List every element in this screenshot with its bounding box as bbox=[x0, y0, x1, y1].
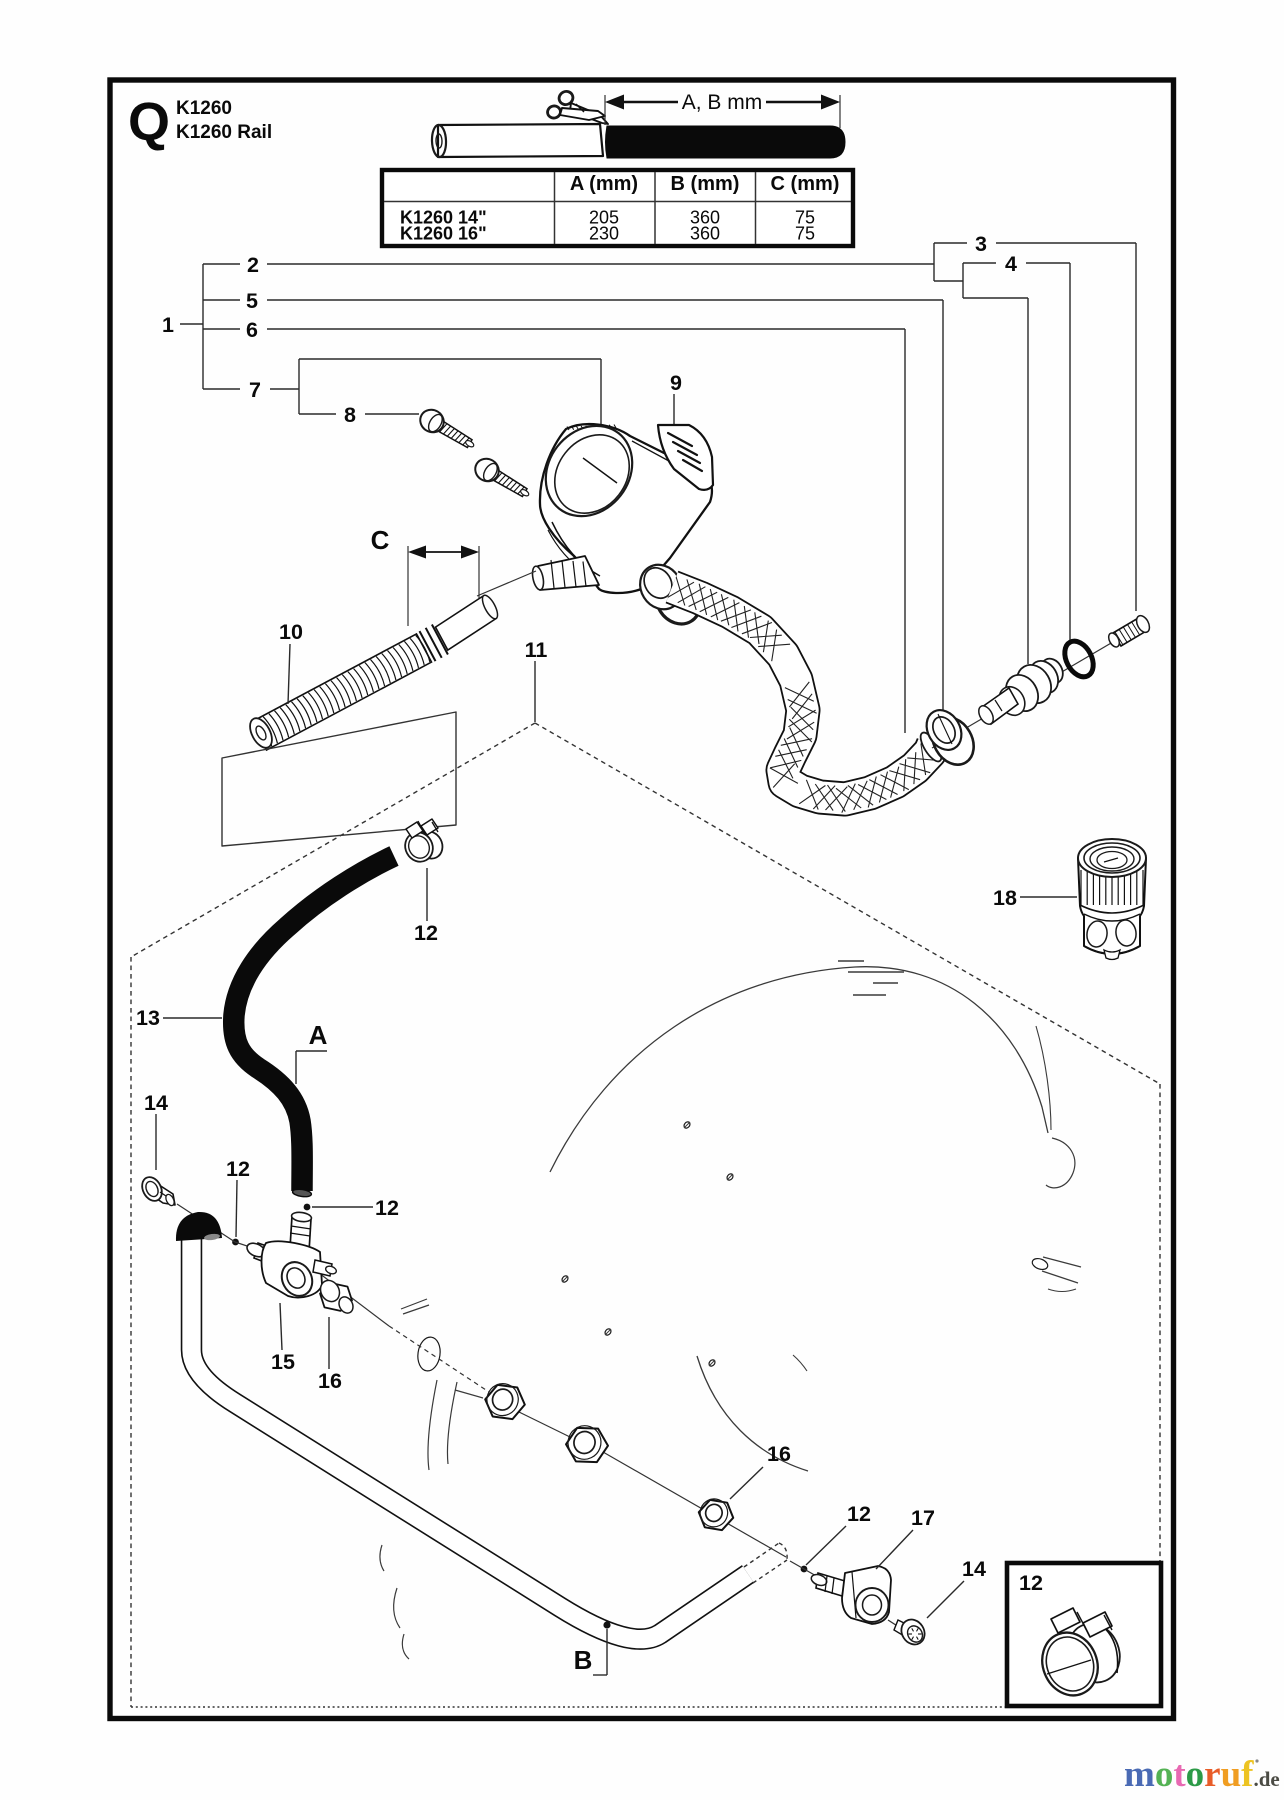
svg-text:13: 13 bbox=[136, 1006, 160, 1030]
svg-text:B (mm): B (mm) bbox=[671, 173, 740, 195]
svg-text:5: 5 bbox=[246, 289, 258, 313]
svg-text:360: 360 bbox=[690, 224, 720, 244]
svg-text:75: 75 bbox=[795, 224, 815, 244]
svg-text:12: 12 bbox=[1019, 1571, 1043, 1595]
svg-text:A, B mm: A, B mm bbox=[682, 91, 763, 114]
svg-text:9: 9 bbox=[670, 371, 682, 395]
svg-text:12: 12 bbox=[375, 1196, 399, 1220]
svg-text:K1260 Rail: K1260 Rail bbox=[176, 122, 272, 143]
svg-text:B: B bbox=[574, 1645, 593, 1675]
svg-text:12: 12 bbox=[414, 921, 438, 945]
svg-text:K1260: K1260 bbox=[176, 98, 232, 119]
svg-text:10: 10 bbox=[279, 620, 303, 644]
svg-text:3: 3 bbox=[975, 232, 987, 256]
svg-text:14: 14 bbox=[962, 1557, 986, 1581]
svg-text:4: 4 bbox=[1005, 252, 1017, 276]
svg-text:12: 12 bbox=[226, 1157, 250, 1181]
svg-text:11: 11 bbox=[525, 638, 548, 662]
svg-text:15: 15 bbox=[271, 1350, 295, 1374]
svg-text:17: 17 bbox=[911, 1506, 935, 1530]
svg-text:A: A bbox=[309, 1020, 328, 1050]
svg-text:A (mm): A (mm) bbox=[570, 173, 638, 195]
svg-text:6: 6 bbox=[246, 318, 258, 342]
svg-text:K1260 16": K1260 16" bbox=[400, 224, 487, 244]
svg-text:1: 1 bbox=[162, 313, 174, 337]
svg-text:2: 2 bbox=[247, 253, 259, 277]
svg-text:12: 12 bbox=[847, 1502, 871, 1526]
svg-text:Q: Q bbox=[128, 92, 170, 152]
svg-text:C (mm): C (mm) bbox=[771, 173, 840, 195]
svg-text:16: 16 bbox=[318, 1369, 342, 1393]
svg-text:8: 8 bbox=[344, 403, 356, 427]
svg-text:7: 7 bbox=[249, 378, 261, 402]
svg-text:C: C bbox=[371, 525, 390, 555]
svg-text:14: 14 bbox=[144, 1091, 168, 1115]
svg-text:18: 18 bbox=[993, 886, 1017, 910]
svg-text:230: 230 bbox=[589, 224, 619, 244]
svg-text:16: 16 bbox=[767, 1442, 791, 1466]
